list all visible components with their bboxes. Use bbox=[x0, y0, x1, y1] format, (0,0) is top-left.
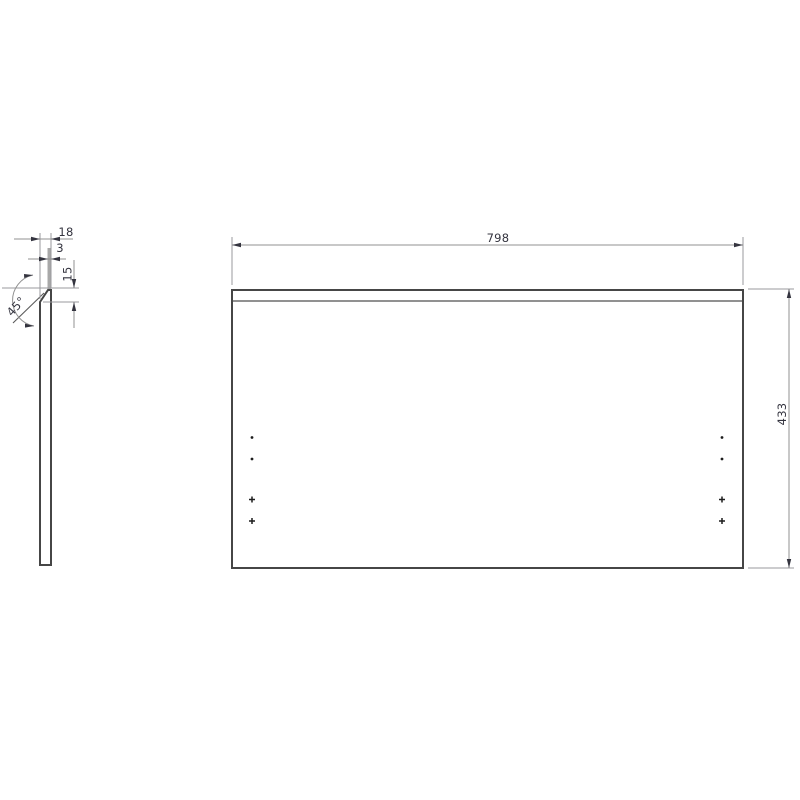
cad-drawing: 18 3 15 bbox=[0, 0, 800, 800]
dim-433-label: 433 bbox=[775, 403, 789, 426]
dimension-width: 798 bbox=[232, 231, 743, 285]
arrowhead-icon bbox=[24, 274, 33, 278]
dimension-height: 433 bbox=[748, 289, 794, 568]
arrowhead-icon bbox=[39, 257, 48, 261]
arrowhead-icon bbox=[787, 559, 791, 568]
angle-annotation: 45° bbox=[4, 274, 34, 328]
arrowhead-icon bbox=[232, 243, 241, 247]
dim-15-label: 15 bbox=[61, 266, 75, 281]
arrowhead-icon bbox=[734, 243, 743, 247]
drawing-canvas: 18 3 15 bbox=[0, 0, 800, 800]
drill-hole-marker bbox=[251, 436, 254, 439]
arrowhead-icon bbox=[51, 257, 60, 261]
arrowhead-icon bbox=[31, 237, 40, 241]
front-view: 798 433 bbox=[232, 231, 794, 568]
arrowhead-icon bbox=[72, 302, 76, 311]
drill-hole-marker bbox=[251, 458, 254, 461]
drill-hole-marker bbox=[721, 458, 724, 461]
arrowhead-icon bbox=[787, 289, 791, 298]
panel-side-profile bbox=[40, 290, 51, 565]
angle-45-label: 45° bbox=[4, 294, 29, 319]
panel-front-face bbox=[232, 290, 743, 568]
side-view: 18 3 15 bbox=[2, 225, 79, 565]
dimension-top-flat: 3 bbox=[28, 241, 66, 261]
dim-3-label: 3 bbox=[56, 241, 64, 255]
dim-798-label: 798 bbox=[487, 231, 510, 245]
dim-18-label: 18 bbox=[58, 225, 73, 239]
drill-hole-marker bbox=[721, 436, 724, 439]
